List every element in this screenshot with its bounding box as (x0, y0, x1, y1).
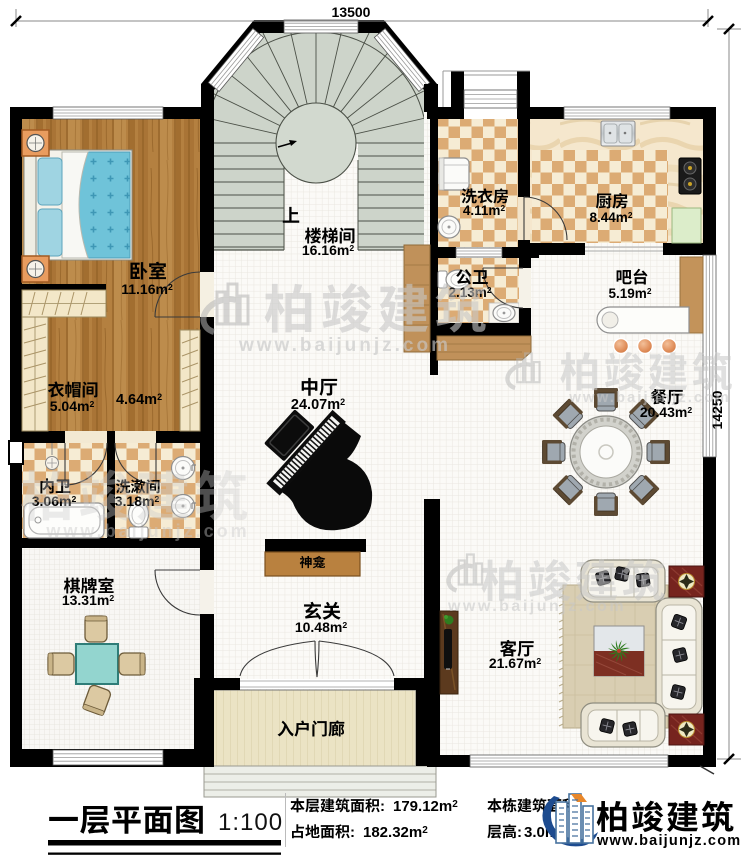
svg-text:www.baijunjz.com: www.baijunjz.com (568, 389, 730, 406)
svg-text:5.04m2: 5.04m2 (50, 398, 95, 414)
svg-text:13500: 13500 (332, 4, 371, 20)
svg-text:www.baijunjz.com: www.baijunjz.com (238, 335, 451, 356)
svg-text:182.32m2: 182.32m2 (363, 824, 428, 841)
svg-text:5.19m2: 5.19m2 (609, 286, 652, 301)
svg-text:www.baijunjz.com: www.baijunjz.com (447, 598, 626, 615)
svg-text::: : (517, 824, 522, 841)
svg-text:11.16m2: 11.16m2 (121, 281, 173, 297)
svg-text:8.44m2: 8.44m2 (590, 210, 633, 225)
svg-text:4.64m2: 4.64m2 (116, 392, 162, 408)
svg-text:21.67m2: 21.67m2 (489, 655, 541, 671)
svg-text:24.07m2: 24.07m2 (291, 397, 345, 413)
svg-text::: : (380, 798, 385, 815)
svg-text:1:100: 1:100 (218, 809, 283, 836)
svg-text::: : (350, 824, 355, 841)
svg-text:179.12m2: 179.12m2 (393, 798, 458, 815)
svg-text:4.11m2: 4.11m2 (463, 203, 506, 218)
svg-text:www.baijunjz.com: www.baijunjz.com (45, 521, 249, 541)
svg-text:13.31m2: 13.31m2 (62, 592, 114, 608)
svg-text:www.baijunjz.com: www.baijunjz.com (596, 833, 741, 849)
svg-text:20.43m2: 20.43m2 (640, 404, 692, 420)
svg-text:16.16m2: 16.16m2 (302, 242, 354, 258)
svg-text:10.48m2: 10.48m2 (295, 619, 347, 635)
